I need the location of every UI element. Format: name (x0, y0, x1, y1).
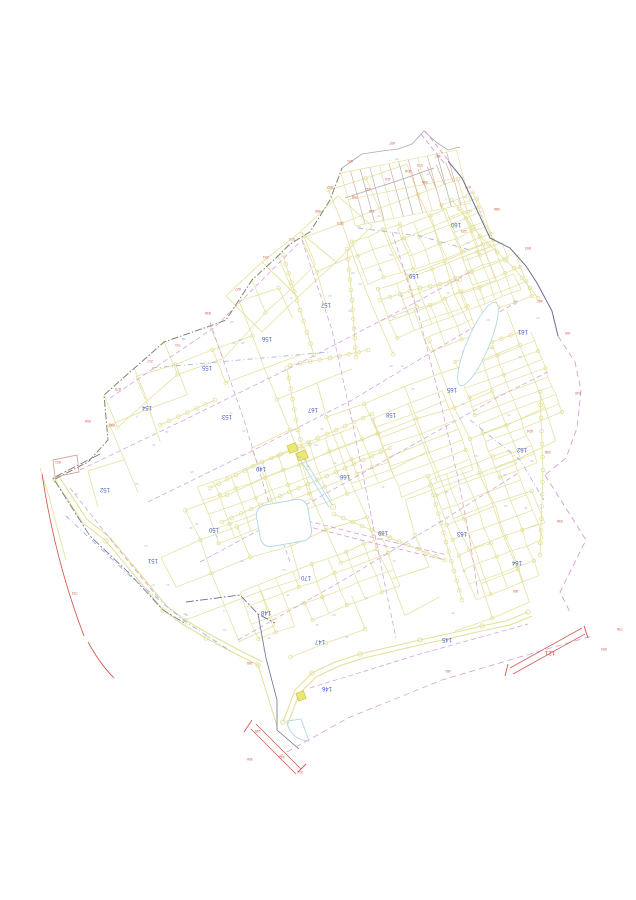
svg-text:514: 514 (297, 770, 303, 774)
svg-text:72: 72 (333, 461, 337, 465)
svg-text:28: 28 (195, 522, 199, 526)
svg-text:151: 151 (147, 557, 158, 563)
svg-text:4: 4 (445, 197, 447, 201)
svg-text:54: 54 (392, 315, 396, 319)
svg-text:169: 169 (377, 529, 388, 535)
svg-text:84: 84 (74, 492, 78, 496)
svg-text:875: 875 (115, 387, 121, 391)
svg-text:162: 162 (516, 446, 527, 452)
svg-text:158: 158 (385, 411, 396, 417)
svg-text:92: 92 (183, 612, 187, 616)
svg-text:157: 157 (320, 301, 331, 307)
svg-text:741: 741 (175, 343, 181, 347)
svg-text:78: 78 (426, 172, 430, 176)
svg-text:93: 93 (357, 225, 361, 229)
svg-text:950: 950 (315, 209, 321, 213)
svg-text:40: 40 (242, 429, 246, 433)
svg-text:275: 275 (417, 163, 423, 167)
svg-text:733: 733 (72, 591, 78, 595)
svg-text:82: 82 (332, 613, 336, 617)
svg-text:204: 204 (263, 255, 269, 259)
svg-text:70: 70 (377, 214, 381, 218)
svg-text:99: 99 (461, 402, 465, 406)
svg-text:39: 39 (530, 459, 534, 463)
svg-text:831: 831 (55, 460, 61, 464)
svg-text:44: 44 (144, 544, 148, 548)
svg-text:166: 166 (339, 473, 350, 479)
svg-text:79: 79 (464, 195, 468, 199)
svg-text:501: 501 (347, 159, 353, 163)
svg-text:115: 115 (385, 177, 391, 181)
svg-text:894: 894 (109, 423, 115, 427)
svg-text:35: 35 (400, 294, 404, 298)
svg-text:50: 50 (297, 455, 301, 459)
svg-text:586: 586 (494, 207, 500, 211)
svg-text:407: 407 (435, 154, 441, 158)
svg-text:43: 43 (536, 316, 540, 320)
svg-text:150: 150 (208, 526, 219, 532)
svg-text:149: 149 (255, 465, 266, 471)
svg-text:33: 33 (328, 294, 332, 298)
svg-text:238: 238 (545, 450, 551, 454)
svg-text:98: 98 (405, 310, 409, 314)
svg-text:30: 30 (411, 387, 415, 391)
svg-text:5: 5 (136, 415, 138, 419)
svg-text:71: 71 (215, 534, 219, 538)
svg-text:77: 77 (229, 411, 233, 415)
svg-text:156: 156 (261, 335, 272, 341)
svg-text:31: 31 (315, 623, 319, 627)
svg-text:159: 159 (408, 272, 419, 278)
svg-text:154: 154 (141, 404, 152, 410)
svg-text:306: 306 (247, 757, 253, 761)
svg-text:12: 12 (165, 430, 169, 434)
svg-text:958: 958 (85, 419, 91, 423)
svg-text:94: 94 (166, 583, 170, 587)
svg-text:23: 23 (486, 318, 490, 322)
svg-text:824: 824 (527, 429, 533, 433)
svg-text:318: 318 (369, 209, 375, 213)
svg-text:51: 51 (400, 364, 404, 368)
svg-text:993: 993 (601, 647, 607, 651)
svg-text:10: 10 (503, 473, 507, 477)
svg-text:94: 94 (389, 253, 393, 257)
svg-text:240: 240 (575, 391, 581, 395)
svg-text:536: 536 (557, 519, 563, 523)
svg-text:164: 164 (511, 559, 522, 565)
svg-text:46: 46 (345, 635, 349, 639)
svg-text:93: 93 (474, 454, 478, 458)
svg-text:482: 482 (537, 299, 543, 303)
svg-text:82: 82 (232, 341, 236, 345)
svg-text:89: 89 (358, 282, 362, 286)
svg-text:145: 145 (441, 636, 452, 642)
svg-text:52: 52 (135, 482, 139, 486)
svg-text:47: 47 (381, 485, 385, 489)
svg-text:571: 571 (289, 237, 295, 241)
svg-text:570: 570 (337, 221, 343, 225)
svg-text:2: 2 (263, 647, 265, 651)
svg-text:87: 87 (389, 364, 393, 368)
svg-text:45: 45 (241, 341, 245, 345)
svg-text:676: 676 (465, 185, 471, 189)
svg-text:818: 818 (405, 169, 411, 173)
svg-text:65: 65 (513, 299, 517, 303)
svg-text:38: 38 (152, 443, 156, 447)
svg-text:342: 342 (279, 755, 285, 759)
svg-text:2: 2 (469, 539, 471, 543)
svg-text:19: 19 (504, 504, 508, 508)
svg-text:54: 54 (466, 241, 470, 245)
svg-text:165: 165 (446, 386, 457, 392)
svg-text:98: 98 (189, 526, 193, 530)
svg-text:657: 657 (389, 141, 395, 145)
svg-text:62: 62 (230, 320, 234, 324)
svg-text:55: 55 (240, 559, 244, 563)
svg-text:146: 146 (321, 685, 332, 691)
svg-text:148: 148 (260, 609, 271, 615)
svg-text:147: 147 (314, 638, 325, 644)
svg-text:838: 838 (205, 311, 211, 315)
svg-text:31: 31 (462, 569, 466, 573)
svg-text:708: 708 (352, 195, 358, 199)
svg-text:48: 48 (479, 214, 483, 218)
svg-text:42: 42 (181, 337, 185, 341)
svg-text:95: 95 (190, 470, 194, 474)
svg-text:167: 167 (307, 406, 318, 412)
svg-text:296: 296 (422, 180, 428, 184)
svg-text:87: 87 (468, 209, 472, 213)
svg-text:43: 43 (371, 533, 375, 537)
svg-text:63: 63 (282, 568, 286, 572)
svg-text:158: 158 (247, 661, 253, 665)
svg-text:87: 87 (151, 583, 155, 587)
svg-text:14: 14 (223, 628, 227, 632)
svg-text:73: 73 (507, 413, 511, 417)
svg-text:28: 28 (518, 355, 522, 359)
svg-text:85: 85 (267, 636, 271, 640)
svg-text:170: 170 (300, 574, 311, 580)
svg-text:46: 46 (320, 427, 324, 431)
svg-text:893: 893 (525, 246, 531, 250)
svg-text:195: 195 (565, 331, 571, 335)
svg-text:217: 217 (147, 359, 153, 363)
svg-text:223: 223 (461, 229, 467, 233)
svg-text:22: 22 (348, 309, 352, 313)
svg-text:42: 42 (238, 338, 242, 342)
svg-text:155: 155 (201, 364, 212, 370)
svg-text:481: 481 (445, 669, 451, 673)
svg-text:189: 189 (513, 589, 519, 593)
svg-text:83: 83 (395, 157, 399, 161)
svg-text:736: 736 (617, 627, 623, 631)
svg-text:161: 161 (517, 328, 528, 334)
svg-text:160: 160 (450, 221, 461, 227)
svg-text:148: 148 (255, 729, 261, 733)
svg-text:627: 627 (235, 287, 241, 291)
svg-text:55: 55 (451, 611, 455, 615)
svg-text:802: 802 (327, 185, 333, 189)
svg-text:47: 47 (392, 559, 396, 563)
svg-text:75: 75 (286, 593, 290, 597)
svg-text:67: 67 (289, 296, 293, 300)
svg-text:45: 45 (524, 506, 528, 510)
svg-text:163: 163 (456, 530, 467, 536)
svg-text:121: 121 (544, 649, 555, 656)
svg-text:39: 39 (445, 490, 449, 494)
svg-text:4: 4 (223, 609, 225, 613)
svg-text:33: 33 (378, 268, 382, 272)
svg-text:21: 21 (364, 596, 368, 600)
svg-text:152: 152 (99, 486, 110, 492)
svg-text:24: 24 (314, 443, 318, 447)
svg-text:80: 80 (351, 271, 355, 275)
svg-text:142: 142 (365, 187, 371, 191)
svg-text:75: 75 (240, 453, 244, 457)
svg-text:64: 64 (455, 278, 459, 282)
svg-text:57: 57 (446, 291, 450, 295)
